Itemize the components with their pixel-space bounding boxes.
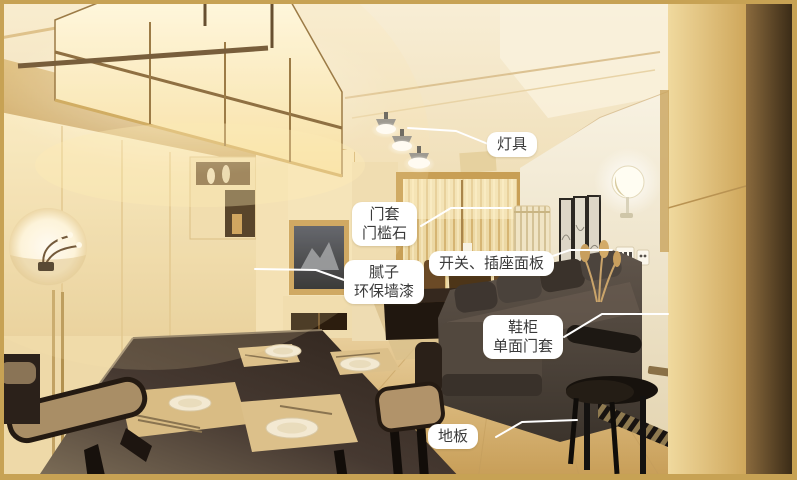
sofa-chaise-front: [442, 374, 542, 396]
plate-center: [349, 360, 371, 368]
annotation-label-lighting: 灯具: [487, 132, 537, 157]
hallway-column: [668, 0, 746, 480]
plate-center: [273, 348, 293, 355]
pampas-plume: [599, 240, 609, 258]
pampas-plume: [580, 244, 590, 262]
wall-sconce-stem: [626, 197, 629, 214]
dining-chair-cushion: [0, 362, 36, 384]
annotation-label-putty-paint: 腻子 环保墙漆: [344, 260, 424, 304]
socket-hole: [644, 255, 647, 258]
socket-hole: [640, 255, 643, 258]
annotation-label-floor: 地板: [428, 424, 478, 449]
entry-table-leg: [584, 398, 590, 470]
wall-sconce: [612, 166, 644, 198]
pampas-plume: [613, 251, 621, 267]
annotation-label-shoe-cabinet: 鞋柜 单面门套: [483, 315, 563, 359]
entry-table-leg: [640, 396, 646, 474]
annotation-label-switch-socket: 开关、插座面板: [429, 251, 554, 276]
annotation-label-door-frame: 门套 门槛石: [352, 202, 417, 246]
wall-sconce-base: [620, 213, 633, 218]
plate-center: [277, 423, 307, 434]
annotated-photo: 灯具 门套 门槛石 开关、插座面板 腻子 环保墙漆 鞋柜 单面门套 地板: [0, 0, 797, 480]
entry-column: [746, 0, 793, 480]
plate-center: [178, 399, 202, 408]
doorway-gap: [660, 90, 669, 252]
